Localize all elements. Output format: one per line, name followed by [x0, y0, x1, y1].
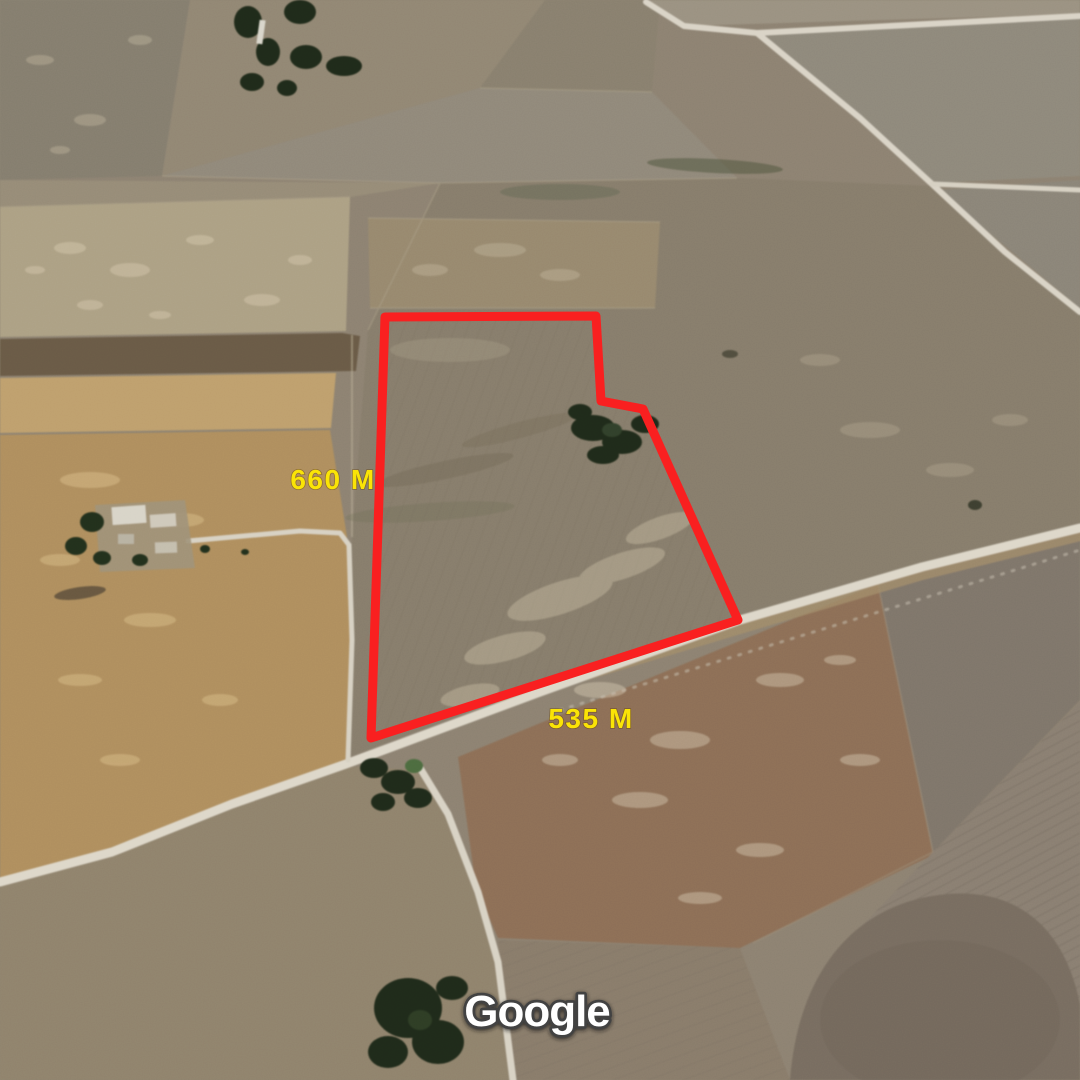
grain-overlay — [0, 0, 1080, 1080]
google-earth-map-view[interactable]: 660 M 535 M Google — [0, 0, 1080, 1080]
satellite-imagery: 660 M 535 M Google — [0, 0, 1080, 1080]
